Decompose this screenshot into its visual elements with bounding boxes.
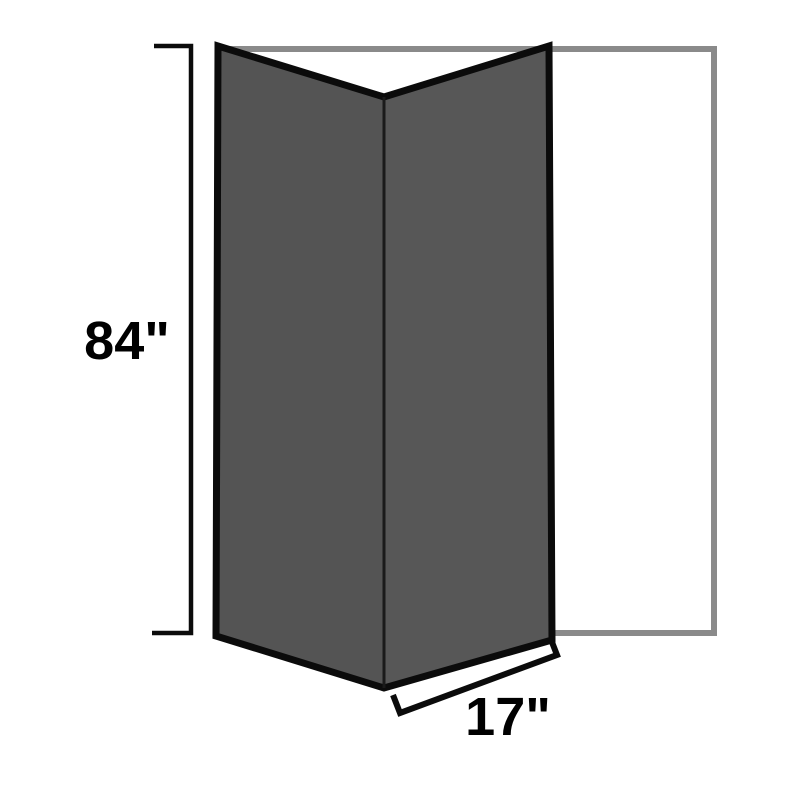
corner-guard-right-panel xyxy=(384,46,552,688)
width-dimension-label: 17" xyxy=(465,687,551,747)
corner-guard-left-panel xyxy=(216,46,384,688)
corner-guard-dimension-diagram: 84" 17" xyxy=(0,0,800,800)
diagram-canvas: 84" 17" xyxy=(0,0,800,800)
height-dimension-label: 84" xyxy=(84,311,170,371)
